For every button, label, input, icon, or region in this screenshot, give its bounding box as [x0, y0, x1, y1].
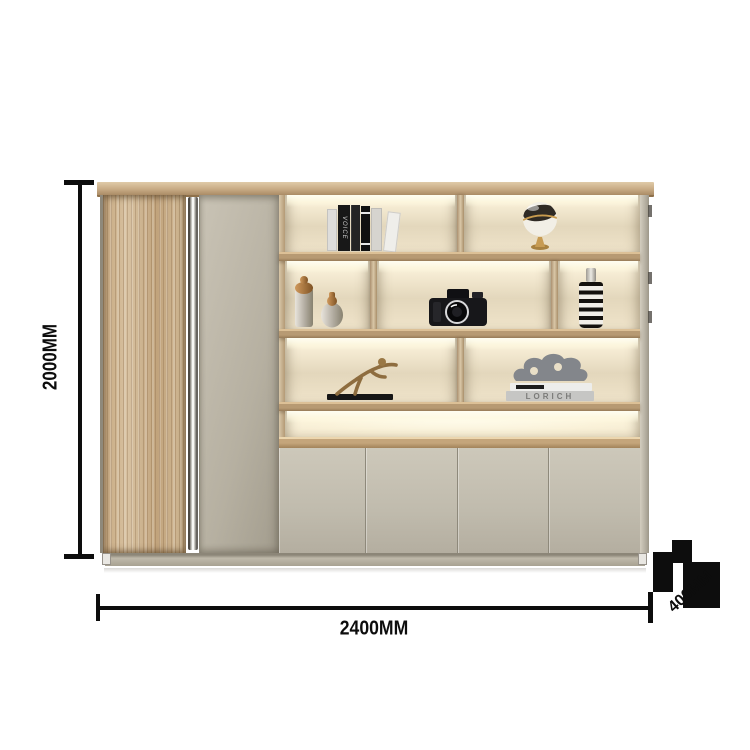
shelf-compartment-bottles: [285, 261, 370, 329]
cabinet: VOICE: [100, 182, 650, 568]
book-spine-text: VOICE: [341, 216, 347, 240]
book-end: [383, 211, 401, 252]
vase-body: [579, 282, 603, 328]
book-spine: [371, 208, 382, 251]
bottom-door-row: [279, 448, 640, 553]
width-dimension-line: [98, 606, 651, 610]
width-dimension-cap-right: [648, 592, 653, 623]
shelf-compartment-runner: [285, 338, 457, 402]
shelf-compartment-sculpture: LORICH: [464, 338, 640, 402]
abstract-sculpture-on-books: LORICH: [500, 347, 610, 401]
open-shelf-section: VOICE: [279, 195, 640, 553]
bottom-door-2: [366, 448, 457, 553]
width-dimension-label: 2400MM: [340, 618, 408, 641]
striped-vase: [576, 268, 606, 328]
edge-shadow-mark: [648, 311, 652, 323]
book-spine: [327, 209, 337, 251]
cabinet-foot-left: [102, 553, 111, 565]
depth-dimension-mark: [653, 552, 673, 592]
bottom-door-1: [279, 448, 366, 553]
shelf-divider: [457, 195, 464, 252]
shelf-divider: [370, 261, 377, 329]
led-strip: [287, 411, 638, 423]
width-dimension-cap-left: [96, 594, 100, 621]
shelf-divider: [551, 261, 558, 329]
tall-greige-door: [199, 195, 280, 553]
vase-neck: [586, 268, 596, 282]
book-stack-text: LORICH: [526, 392, 575, 401]
display-shelf-wide: [285, 411, 640, 437]
runner-sculpture: [325, 349, 403, 401]
shelf-compartment-globe: [464, 195, 640, 252]
bottom-door-4: [549, 448, 640, 553]
shelf-board: [279, 402, 640, 411]
chrome-door-handle: [188, 197, 198, 550]
bottom-door-3: [458, 448, 549, 553]
shelf-compartment-camera: [377, 261, 551, 329]
mercury-glass-bottles: [291, 274, 349, 328]
shelf-divider: [457, 338, 464, 402]
floor-shadow: [104, 568, 646, 573]
book-spine: [361, 206, 370, 251]
product-image: VOICE: [0, 0, 750, 750]
height-dimension-label: 2000MM: [40, 324, 63, 390]
shelf-compartment-vase: [558, 261, 640, 329]
book-row: VOICE: [327, 205, 396, 251]
cabinet-foot-right: [638, 553, 647, 565]
book-spine: [351, 205, 360, 251]
edge-shadow-mark: [648, 272, 652, 284]
cabinet-right-side-panel: [640, 195, 649, 553]
retro-camera: [427, 286, 491, 328]
led-strip: [379, 261, 549, 273]
depth-dimension-mark: [672, 540, 692, 563]
globe-ornament: [518, 199, 562, 251]
book-spine: VOICE: [338, 205, 350, 251]
edge-shadow-mark: [648, 205, 652, 217]
shelf-board: [279, 252, 640, 261]
plinth: [105, 553, 645, 566]
height-dimension-cap-bottom: [64, 554, 94, 559]
counter-board: [279, 437, 640, 448]
shelf-compartment-books: VOICE: [285, 195, 457, 252]
shelf-board: [279, 329, 640, 338]
led-strip: [287, 261, 368, 273]
wood-grain-door: [103, 195, 186, 553]
height-dimension-line: [78, 182, 82, 558]
height-dimension-cap-top: [64, 180, 94, 185]
